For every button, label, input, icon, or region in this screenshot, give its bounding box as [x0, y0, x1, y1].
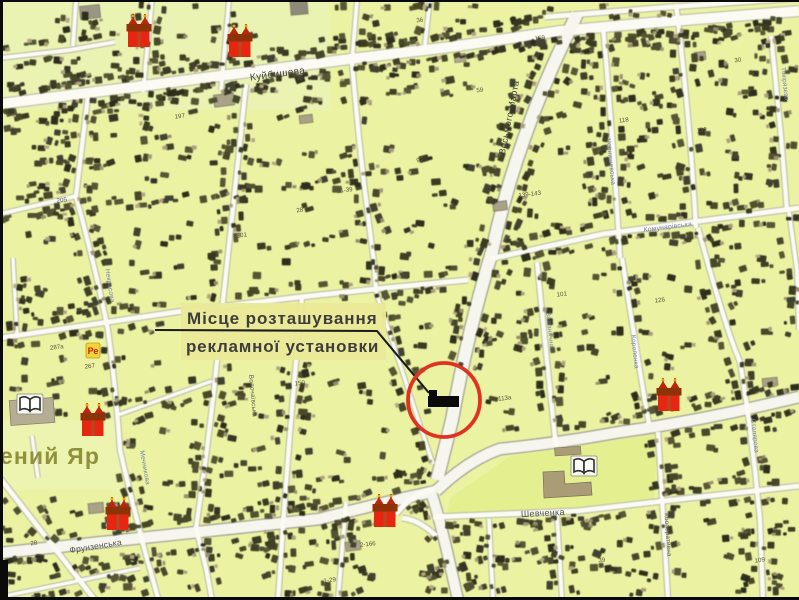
svg-text:267: 267 [84, 362, 96, 370]
svg-text:Ре: Ре [88, 346, 99, 356]
svg-text:118: 118 [618, 116, 629, 124]
svg-text:рекламної установки: рекламної установки [186, 337, 379, 356]
svg-text:Місце розташування: Місце розташування [187, 309, 378, 328]
svg-text:205: 205 [56, 196, 68, 204]
svg-text:126: 126 [654, 296, 666, 304]
svg-text:101: 101 [556, 290, 568, 298]
svg-text:201: 201 [236, 231, 248, 239]
svg-text:150: 150 [294, 379, 306, 387]
svg-text:197: 197 [174, 112, 186, 120]
svg-text:159: 159 [534, 34, 546, 42]
svg-text:109: 109 [754, 556, 766, 564]
svg-text:ений Яр: ений Яр [0, 443, 100, 469]
svg-text:132: 132 [696, 126, 708, 134]
